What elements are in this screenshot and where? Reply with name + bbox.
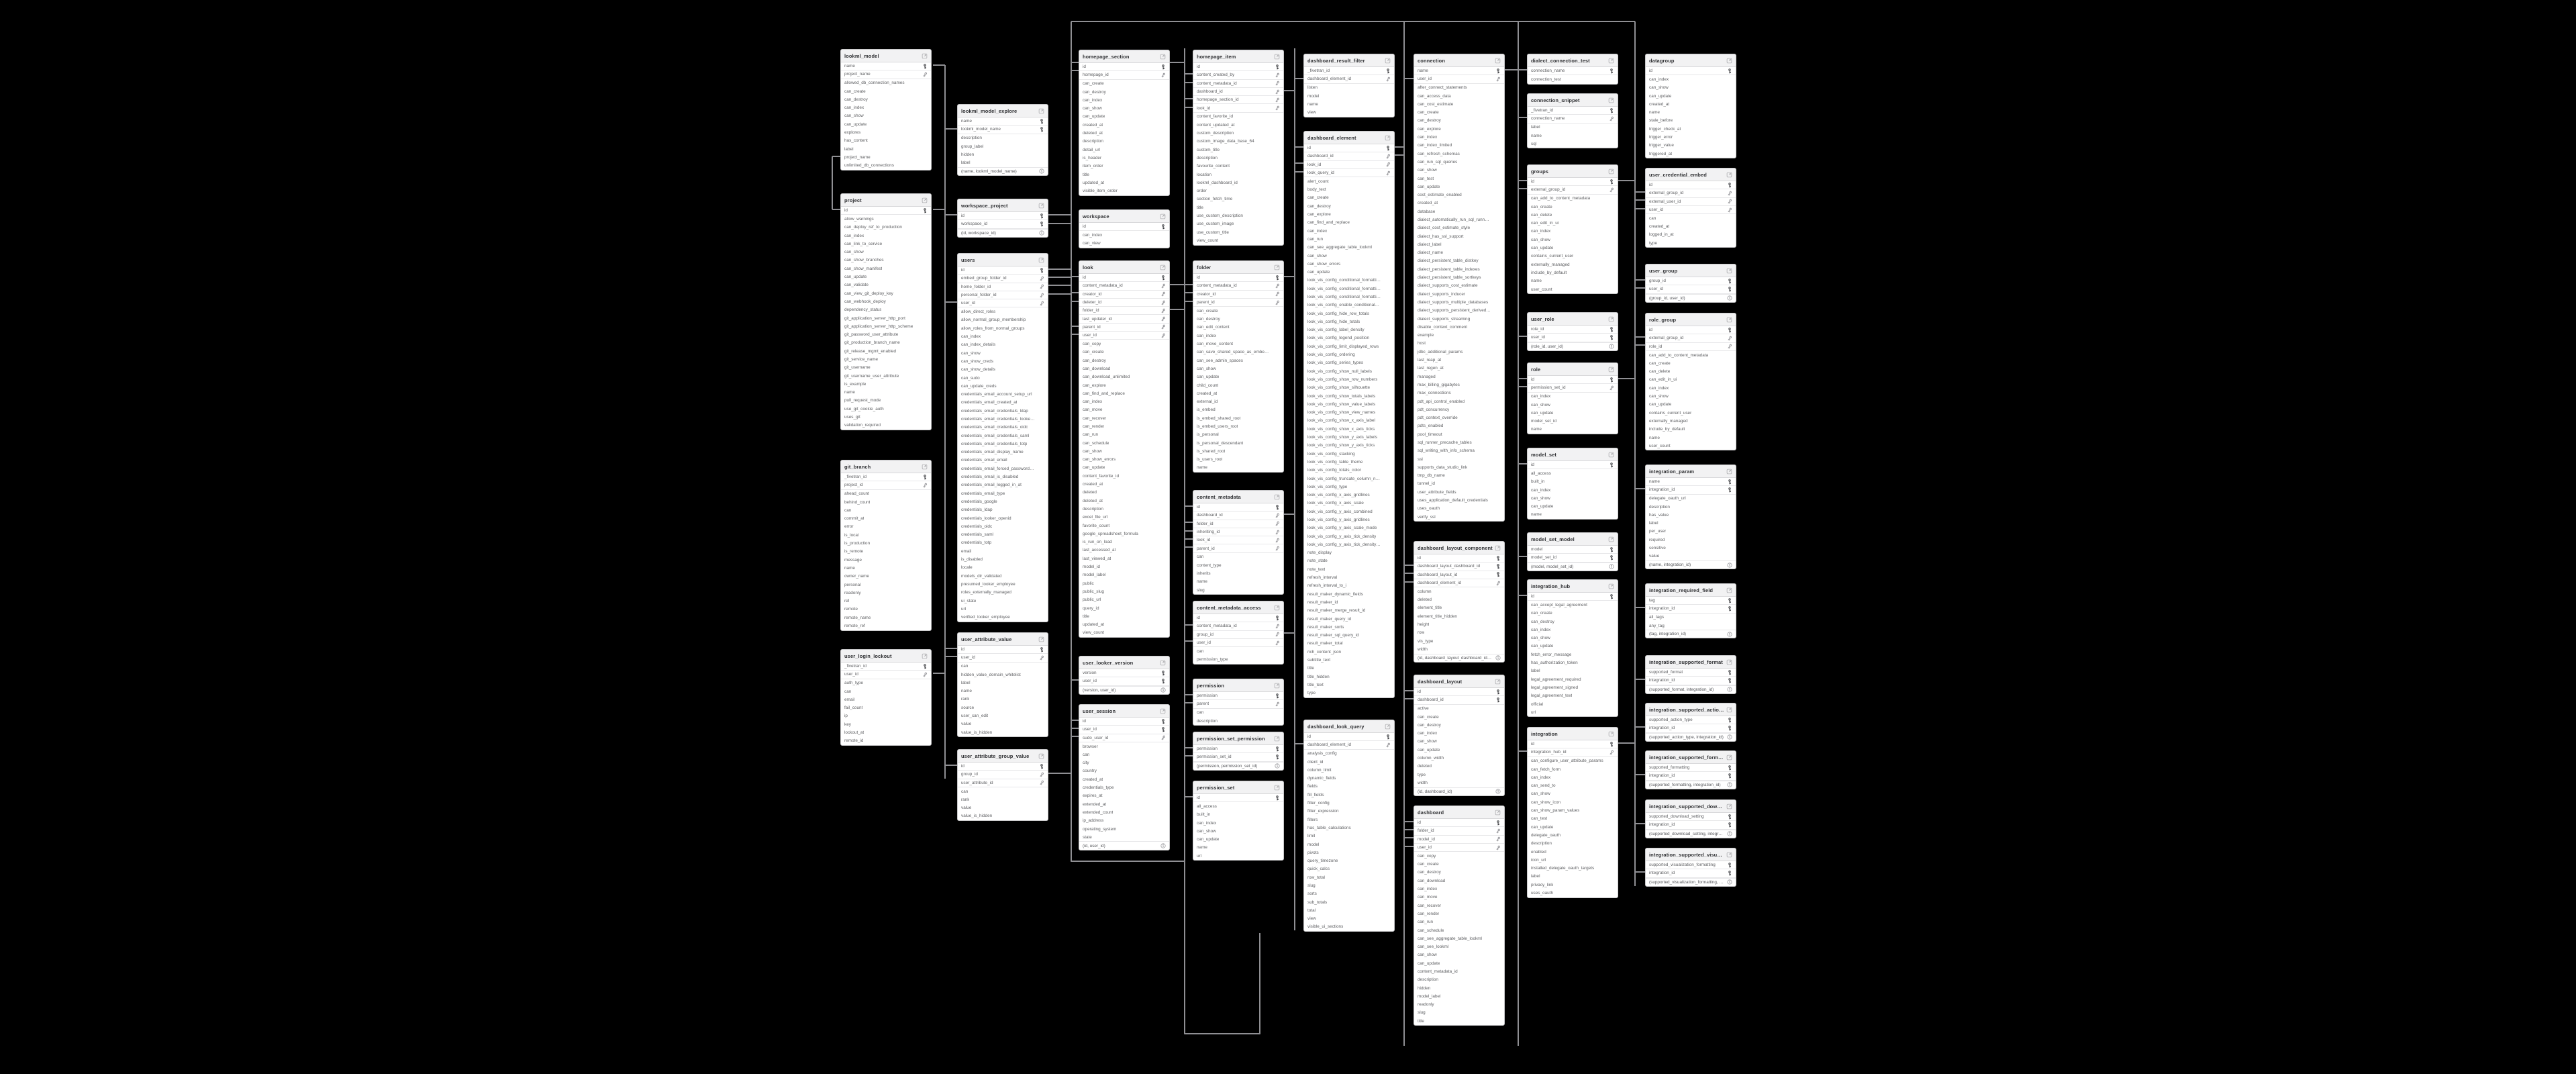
table-header[interactable]: user_credential_embed — [1646, 168, 1736, 181]
open-table-icon[interactable] — [1274, 736, 1280, 742]
open-table-icon[interactable] — [1726, 469, 1732, 475]
column-row: name — [1414, 67, 1504, 75]
column-row: expires_at — [1079, 792, 1169, 800]
column-name: delegate_oauth — [1531, 833, 1561, 838]
table-card-dashboard[interactable]: dashboardidfolder_idmodel_iduser_idcan_c… — [1414, 805, 1505, 1026]
column-row: trigger_check_at — [1646, 125, 1736, 133]
column-row: integration_id — [1646, 605, 1736, 613]
open-table-icon[interactable] — [1160, 264, 1166, 271]
column-row: can_show — [1304, 252, 1394, 260]
column-name: user_id — [1197, 640, 1211, 645]
table-header[interactable]: datagroup — [1646, 54, 1736, 67]
column-name: can_update — [1083, 114, 1105, 119]
open-table-icon[interactable] — [1608, 97, 1614, 103]
open-table-icon[interactable] — [922, 653, 928, 659]
table-card-dashboard_look_query[interactable]: dashboard_look_queryiddashboard_element_… — [1303, 720, 1395, 932]
column-row: look_vis_config_show_totals_labels — [1304, 392, 1394, 400]
column-row: can_update — [1528, 409, 1618, 417]
column-row: filter_config — [1304, 799, 1394, 807]
column-name: pdt_concurrency — [1418, 407, 1449, 412]
primary-key-icon — [1039, 127, 1044, 132]
column-name: name — [844, 566, 855, 571]
table-card-user_looker_version[interactable]: user_looker_versionversionuser_id(versio… — [1079, 656, 1170, 695]
open-table-icon[interactable] — [1274, 605, 1280, 611]
table-card-integration_supported_download_sett[interactable]: integration_supported_download_sett...su… — [1645, 799, 1736, 838]
column-name: credentials_ldap — [961, 507, 993, 512]
column-row: pdt_api_control_enabled — [1414, 397, 1504, 405]
table-header[interactable]: role — [1528, 363, 1618, 376]
column-name: created_at — [1649, 102, 1669, 107]
open-table-icon[interactable] — [1608, 168, 1614, 175]
column-row: is_example — [841, 380, 931, 388]
column-row: official — [1528, 700, 1618, 708]
column-name: result_maker_sql_query_id — [1307, 633, 1359, 638]
column-name: ref — [844, 599, 849, 603]
table-header[interactable]: permission_set — [1193, 781, 1283, 794]
column-name: dialect_supports_persistent_derived_tabl… — [1418, 308, 1491, 313]
column-row: note_text — [1304, 565, 1394, 573]
open-table-icon[interactable] — [922, 197, 928, 203]
column-row: can_link_to_service — [841, 240, 931, 248]
open-table-icon[interactable] — [1726, 587, 1732, 593]
column-name: managed — [1418, 375, 1436, 379]
column-name: last_viewed_at — [1083, 556, 1111, 561]
column-row: slug — [1193, 586, 1283, 594]
open-table-icon[interactable] — [1608, 731, 1614, 737]
column-name: include_by_default — [1531, 271, 1567, 275]
foreign-key-icon — [1039, 655, 1044, 661]
table-header[interactable]: homepage_item — [1193, 50, 1283, 63]
table-card-integration_supported_visualization_f[interactable]: integration_supported_visualization_f...… — [1645, 848, 1736, 887]
column-name: id — [1531, 179, 1534, 184]
column-row: cost_estimate_enabled — [1414, 191, 1504, 199]
open-table-icon[interactable] — [1608, 367, 1614, 373]
table-header[interactable]: workspace — [1079, 210, 1169, 223]
column-name: dialect_supports_streaming — [1418, 317, 1470, 322]
foreign-key-icon — [1160, 735, 1166, 740]
column-row: can_show_creds — [958, 357, 1048, 365]
table-card-dashboard_element[interactable]: dashboard_elementiddashboard_idlook_idlo… — [1303, 131, 1395, 698]
column-name: can — [961, 789, 968, 794]
table-header[interactable]: dashboard — [1414, 806, 1504, 819]
column-row: email — [841, 695, 931, 703]
column-row: column — [1414, 587, 1504, 595]
column-row: id — [1646, 181, 1736, 189]
table-header[interactable]: user_role — [1528, 313, 1618, 326]
open-table-icon[interactable] — [1274, 494, 1280, 500]
table-card-folder[interactable]: folderidcontent_metadata_idcreator_idpar… — [1193, 260, 1284, 473]
table-card-project[interactable]: projectidallow_warningscan_deploy_ref_to… — [840, 193, 932, 430]
column-name: integration_id — [1649, 773, 1675, 778]
table-name: dashboard_layout — [1418, 679, 1462, 685]
column-row: description — [1079, 138, 1169, 146]
column-name: slug — [1197, 588, 1205, 593]
column-name: key — [844, 722, 851, 727]
table-card-user_attribute_group_value[interactable]: user_attribute_group_valueidgroup_iduser… — [957, 749, 1048, 821]
column-name: can_webhook_deploy — [844, 299, 886, 304]
column-name: has_content — [844, 138, 868, 143]
column-row: view_count — [1079, 629, 1169, 637]
table-name: integration_param — [1649, 469, 1694, 475]
column-row: error — [841, 523, 931, 531]
table-card-lookml_model[interactable]: lookml_modelnameproject_nameallowed_db_c… — [840, 49, 932, 170]
column-row: credentials_email_account_setup_url — [958, 390, 1048, 398]
column-name: refresh_interval_to_i — [1307, 583, 1346, 588]
column-name: row_total — [1307, 875, 1325, 880]
open-table-icon[interactable] — [1160, 54, 1166, 60]
open-table-icon[interactable] — [1726, 659, 1732, 665]
column-row: parent_id — [1193, 544, 1283, 552]
open-table-icon[interactable] — [1274, 683, 1280, 689]
column-name: can_show_errors — [1307, 262, 1340, 266]
column-row: readonly — [841, 589, 931, 597]
table-header[interactable]: integration_supported_download_sett... — [1646, 800, 1736, 813]
column-row: contains_current_user — [1646, 409, 1736, 417]
foreign-key-icon — [1160, 300, 1166, 305]
column-row: trigger_value — [1646, 142, 1736, 150]
table-card-role_group[interactable]: role_groupidexternal_group_idrole_idcan_… — [1645, 313, 1736, 450]
column-row: id — [1528, 593, 1618, 601]
open-table-icon[interactable] — [1726, 803, 1732, 810]
open-table-icon[interactable] — [1495, 810, 1501, 816]
column-row: value — [958, 720, 1048, 728]
table-card-role[interactable]: roleidpermission_set_idcan_indexcan_show… — [1527, 362, 1618, 434]
column-name: id — [1649, 328, 1652, 332]
open-table-icon[interactable] — [922, 464, 928, 470]
column-row: source — [958, 703, 1048, 712]
column-row: remote — [841, 605, 931, 614]
open-table-icon[interactable] — [1274, 54, 1280, 60]
column-name: git_username — [844, 365, 871, 370]
column-row: id — [958, 763, 1048, 771]
table-card-groups[interactable]: groupsidexternal_group_idcan_add_to_cont… — [1527, 164, 1618, 294]
column-row: look_vis_config_y_axis_gridlines — [1304, 516, 1394, 524]
table-card-integration_supported_action_type[interactable]: integration_supported_action_typesupport… — [1645, 703, 1736, 742]
table-card-connection_snippet[interactable]: connection_snippet_fivetran_idconnection… — [1527, 93, 1618, 148]
open-table-icon[interactable] — [1160, 708, 1166, 714]
open-table-icon[interactable] — [922, 53, 928, 59]
column-name: can_show — [1531, 403, 1550, 407]
table-header[interactable]: model_set — [1528, 448, 1618, 461]
table-header[interactable]: users — [958, 254, 1048, 266]
table-header[interactable]: dashboard_result_filter — [1304, 54, 1394, 67]
column-row: required — [1646, 536, 1736, 544]
table-card-workspace_project[interactable]: workspace_projectidworkspace_id(id, work… — [957, 199, 1048, 238]
table-header[interactable]: connection — [1414, 54, 1504, 67]
column-name: note_display — [1307, 550, 1332, 555]
column-row: look_vis_config_conditional_formatting_i… — [1304, 285, 1394, 293]
table-header[interactable]: integration_supported_format — [1646, 656, 1736, 669]
column-name: permission_set_id — [1197, 754, 1232, 759]
open-table-icon[interactable] — [1160, 660, 1166, 666]
open-table-icon[interactable] — [1038, 753, 1044, 759]
table-header[interactable]: project — [841, 194, 931, 207]
open-table-icon[interactable] — [1160, 213, 1166, 219]
column-name: remote_id — [844, 738, 863, 743]
column-name: can_update — [844, 122, 866, 127]
table-header[interactable]: workspace_project — [958, 199, 1048, 212]
open-table-icon[interactable] — [1038, 636, 1044, 642]
open-table-icon[interactable] — [1726, 754, 1732, 761]
column-row: created_at — [1646, 100, 1736, 108]
table-card-model_set[interactable]: model_setidall_accessbuilt_incan_indexca… — [1527, 448, 1618, 520]
table-card-lookml_model_explore[interactable]: lookml_model_explorenamelookml_model_nam… — [957, 104, 1048, 176]
column-row: has_content — [841, 137, 931, 145]
table-header[interactable]: permission — [1193, 679, 1283, 692]
table-header[interactable]: integration_hub — [1528, 580, 1618, 593]
open-table-icon[interactable] — [1495, 679, 1501, 685]
column-name: can_access_data — [1418, 94, 1451, 99]
table-card-users[interactable]: usersidembed_group_folder_idhome_folder_… — [957, 253, 1048, 622]
table-header[interactable]: connection_snippet — [1528, 94, 1618, 107]
column-name: can_show_creds — [961, 359, 993, 364]
column-name: can_create — [1531, 611, 1552, 616]
composite-key-label: (supported_formatting, integration_id) — [1649, 783, 1721, 787]
column-name: name — [1531, 279, 1542, 283]
table-card-datagroup[interactable]: datagroupidcan_indexcan_showcan_updatecr… — [1645, 54, 1736, 158]
table-card-content_metadata[interactable]: content_metadataiddashboard_idfolder_idi… — [1193, 490, 1284, 595]
open-table-icon[interactable] — [1038, 203, 1044, 209]
column-name: can_update — [1197, 375, 1219, 379]
table-header[interactable]: dialect_connection_test — [1528, 54, 1618, 67]
open-table-icon[interactable] — [1608, 452, 1614, 458]
table-header[interactable]: user_attribute_value — [958, 633, 1048, 646]
column-name: dialect_persistent_table_distkey — [1418, 258, 1479, 263]
column-name: any_tag — [1649, 624, 1665, 628]
column-name: workspace_id — [961, 222, 987, 226]
open-table-icon[interactable] — [1726, 707, 1732, 713]
table-card-dashboard_layout[interactable]: dashboard_layoutiddashboard_idactivecan_… — [1414, 675, 1505, 796]
open-table-icon[interactable] — [1726, 852, 1732, 858]
primary-key-icon — [1275, 795, 1280, 801]
schema-diagram-canvas[interactable]: lookml_modelnameproject_nameallowed_db_c… — [0, 0, 2576, 1074]
table-card-user_login_lockout[interactable]: user_login_lockout_fivetran_iduser_idaut… — [840, 649, 932, 746]
column-row: uses_oauth — [1414, 505, 1504, 513]
table-card-integration[interactable]: integrationidintegration_hub_idcan_confi… — [1527, 727, 1618, 898]
column-row: listen — [1304, 84, 1394, 92]
column-row: excel_file_url — [1079, 514, 1169, 522]
table-header[interactable]: folder — [1193, 261, 1283, 274]
table-header[interactable]: integration_supported_visualization_f... — [1646, 848, 1736, 861]
column-row: child_count — [1193, 381, 1283, 389]
table-header[interactable]: lookml_model — [841, 50, 931, 62]
table-card-homepage_section[interactable]: homepage_sectionidhomepage_idcan_createc… — [1079, 50, 1170, 196]
table-header[interactable]: dashboard_layout_component — [1414, 542, 1504, 554]
column-row: can — [958, 663, 1048, 671]
column-name: city — [1083, 761, 1089, 765]
table-card-integration_hub[interactable]: integration_hubidcan_accept_legal_agreem… — [1527, 579, 1618, 717]
table-header[interactable]: integration_supported_action_type — [1646, 703, 1736, 716]
table-card-workspace[interactable]: workspaceidcan_indexcan_view — [1079, 209, 1170, 248]
column-row: can_accept_legal_agreement — [1528, 601, 1618, 609]
table-header[interactable]: homepage_section — [1079, 50, 1169, 63]
table-header[interactable]: integration — [1528, 728, 1618, 740]
column-row: can_index — [1414, 729, 1504, 737]
table-card-model_set_model[interactable]: model_set_modelmodelmodel_set_id(model, … — [1527, 532, 1618, 571]
column-name: can_index — [1649, 77, 1669, 82]
column-row: label — [1528, 124, 1618, 132]
table-card-homepage_item[interactable]: homepage_itemidcontent_created_bycontent… — [1193, 50, 1284, 246]
table-name: permission — [1197, 683, 1224, 689]
table-header[interactable]: integration_supported_formatting — [1646, 751, 1736, 764]
table-card-look[interactable]: lookidcontent_metadata_idcreator_iddelet… — [1079, 260, 1170, 638]
column-name: permission_type — [1197, 657, 1228, 662]
column-name: has_table_calculations — [1307, 826, 1351, 830]
open-table-icon[interactable] — [1726, 268, 1732, 274]
column-name: look_vis_config_y_axis_combined — [1307, 509, 1373, 514]
column-name: location — [1197, 173, 1211, 177]
table-card-connection[interactable]: connectionnameuser_idafter_connect_state… — [1414, 54, 1505, 522]
open-table-icon[interactable] — [1038, 108, 1044, 114]
table-header[interactable]: look — [1079, 261, 1169, 274]
open-table-icon[interactable] — [1608, 536, 1614, 542]
table-header[interactable]: permission_set_permission — [1193, 732, 1283, 745]
column-name: can_index — [1531, 775, 1550, 780]
column-name: credentials_looker_openid — [961, 516, 1011, 521]
table-card-permission[interactable]: permissionpermissionparentcandescription — [1193, 679, 1284, 726]
open-table-icon[interactable] — [1495, 545, 1501, 551]
table-card-user_credential_embed[interactable]: user_credential_embedidexternal_group_id… — [1645, 168, 1736, 248]
column-name: sudo_user_id — [1083, 736, 1108, 740]
table-header[interactable]: role_group — [1646, 313, 1736, 326]
column-name: width — [1418, 781, 1428, 785]
open-table-icon[interactable] — [1385, 58, 1391, 64]
table-name: integration — [1531, 731, 1558, 737]
open-table-icon[interactable] — [1726, 58, 1732, 64]
table-card-dialect_connection_test[interactable]: dialect_connection_testconnection_nameco… — [1527, 54, 1618, 85]
column-name: result_maker_sorts — [1307, 625, 1344, 630]
column-row: type — [1646, 239, 1736, 247]
table-card-user_session[interactable]: user_sessioniduser_idsudo_user_idbrowser… — [1079, 704, 1170, 850]
column-name: permission — [1197, 746, 1218, 751]
table-header[interactable]: git_branch — [841, 460, 931, 473]
column-row: content_updated_at — [1193, 121, 1283, 129]
column-name: can_destroy — [1531, 620, 1554, 624]
column-row: rank — [958, 695, 1048, 703]
table-header[interactable]: dashboard_element — [1304, 132, 1394, 144]
table-header[interactable]: content_metadata — [1193, 491, 1283, 503]
table-header[interactable]: model_set_model — [1528, 533, 1618, 546]
table-card-dashboard_layout_component[interactable]: dashboard_layout_componentiddashboard_la… — [1414, 541, 1505, 663]
table-card-integration_supported_formatting[interactable]: integration_supported_formattingsupporte… — [1645, 750, 1736, 789]
foreign-key-icon — [1275, 513, 1280, 518]
column-name: use_custom_title — [1197, 230, 1229, 235]
table-header[interactable]: dashboard_look_query — [1304, 720, 1394, 733]
table-card-integration_param[interactable]: integration_paramnameintegration_iddeleg… — [1645, 465, 1736, 569]
table-header[interactable]: lookml_model_explore — [958, 105, 1048, 117]
table-card-permission_set[interactable]: permission_setidall_accessbuilt_incan_in… — [1193, 781, 1284, 861]
open-table-icon[interactable] — [1495, 58, 1501, 64]
column-row: description — [1193, 154, 1283, 162]
table-card-integration_required_field[interactable]: integration_required_fieldtagintegration… — [1645, 583, 1736, 638]
column-row: has_table_calculations — [1304, 824, 1394, 832]
column-name: all_access — [1531, 471, 1551, 476]
column-row: order — [1193, 187, 1283, 195]
table-card-user_group[interactable]: user_groupgroup_iduser_id(group_id, user… — [1645, 264, 1736, 303]
primary-key-icon — [1727, 773, 1732, 779]
column-name: label — [1531, 669, 1540, 673]
foreign-key-icon — [1495, 77, 1501, 82]
table-card-integration_supported_format[interactable]: integration_supported_formatsupported_fo… — [1645, 655, 1736, 694]
column-row: can_show — [1646, 392, 1736, 400]
column-row: pool_timeout — [1414, 430, 1504, 438]
table-card-content_metadata_access[interactable]: content_metadata_accessidcontent_metadat… — [1193, 601, 1284, 665]
column-name: can_create — [1083, 81, 1104, 86]
open-table-icon[interactable] — [1608, 583, 1614, 589]
column-row: client_id — [1304, 758, 1394, 766]
open-table-icon[interactable] — [1274, 785, 1280, 791]
table-card-user_attribute_value[interactable]: user_attribute_valueiduser_idcanhidden_v… — [957, 632, 1048, 737]
table-header[interactable]: content_metadata_access — [1193, 601, 1283, 614]
column-name: legal_agreement_signed — [1531, 685, 1578, 690]
column-name: credentials_email_credentials_ldap — [961, 409, 1028, 413]
column-row: look_vis_config_show_x_axis_ticks — [1304, 425, 1394, 433]
primary-key-icon — [1039, 647, 1044, 652]
table-card-dashboard_result_filter[interactable]: dashboard_result_filter_fivetran_iddashb… — [1303, 54, 1395, 117]
column-row: credentials_email_created_at — [958, 399, 1048, 407]
column-name: value — [1649, 554, 1659, 558]
table-header[interactable]: user_group — [1646, 264, 1736, 277]
open-table-icon[interactable] — [1726, 317, 1732, 323]
table-header[interactable]: user_login_lockout — [841, 650, 931, 663]
open-table-icon[interactable] — [1726, 172, 1732, 178]
foreign-key-icon — [1160, 283, 1166, 289]
table-header[interactable]: integration_param — [1646, 465, 1736, 478]
column-row: can_recover — [1079, 414, 1169, 422]
table-header[interactable]: user_attribute_group_value — [958, 750, 1048, 763]
column-row: can_show — [1193, 364, 1283, 373]
table-card-user_role[interactable]: user_rolerole_iduser_id(role_id, user_id… — [1527, 312, 1618, 351]
open-table-icon[interactable] — [1385, 135, 1391, 141]
foreign-key-icon — [1275, 538, 1280, 543]
table-card-permission_set_permission[interactable]: permission_set_permissionpermissionpermi… — [1193, 732, 1284, 771]
column-row: can_update_creds — [958, 382, 1048, 390]
column-name: can_destroy — [1197, 317, 1220, 322]
table-header[interactable]: groups — [1528, 165, 1618, 178]
open-table-icon[interactable] — [1038, 257, 1044, 263]
column-row: can_show_errors — [1079, 456, 1169, 464]
column-row: can_index — [1414, 133, 1504, 141]
column-row: permission — [1193, 692, 1283, 700]
column-row: can_update — [1528, 642, 1618, 650]
column-row: supported_visualization_formatting — [1646, 861, 1736, 869]
column-name: supported_format — [1649, 670, 1683, 675]
column-name: title — [1418, 1019, 1424, 1024]
table-header[interactable]: integration_required_field — [1646, 584, 1736, 597]
open-table-icon[interactable] — [1274, 264, 1280, 271]
column-name: updated_at — [1083, 622, 1104, 627]
table-card-git_branch[interactable]: git_branch_fivetran_idproject_idahead_co… — [840, 460, 932, 631]
column-row: can_update — [1079, 113, 1169, 121]
column-row: _fivetran_id — [1304, 67, 1394, 75]
column-row: git_username_user_attribute — [841, 372, 931, 380]
column-name: limit — [1307, 834, 1315, 838]
open-table-icon[interactable] — [1385, 724, 1391, 730]
composite-key-label: (supported_format, integration_id) — [1649, 687, 1714, 692]
column-name: can_index — [1083, 98, 1102, 103]
column-row: credentials_email_type — [958, 489, 1048, 497]
primary-key-icon — [1160, 671, 1166, 676]
table-header[interactable]: user_session — [1079, 705, 1169, 718]
column-row: can_index — [1079, 96, 1169, 104]
table-header[interactable]: user_looker_version — [1079, 656, 1169, 669]
open-table-icon[interactable] — [1608, 316, 1614, 322]
column-row: max_billing_gigabytes — [1414, 381, 1504, 389]
column-name: dynamic_fields — [1307, 776, 1336, 781]
column-name: can_destroy — [1083, 90, 1106, 95]
open-table-icon[interactable] — [1608, 58, 1614, 64]
table-header[interactable]: dashboard_layout — [1414, 675, 1504, 688]
